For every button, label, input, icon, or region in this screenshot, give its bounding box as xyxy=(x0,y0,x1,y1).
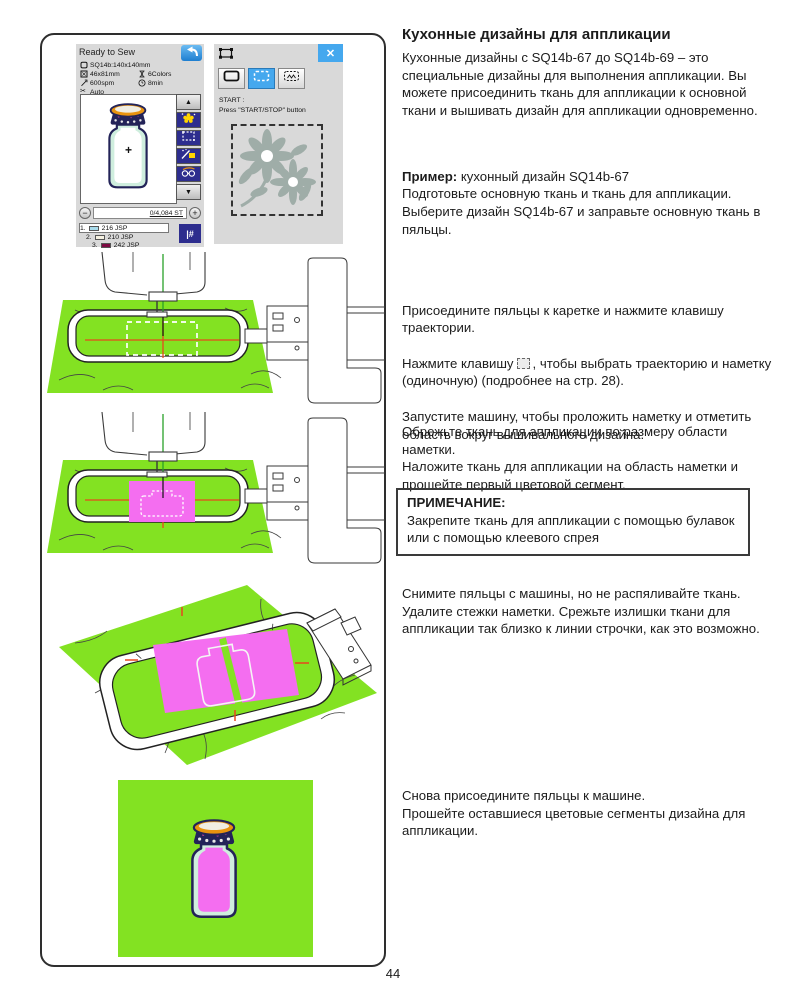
example-label: Пример: xyxy=(402,169,457,184)
trace-key-inline-icon xyxy=(517,358,530,369)
trace-stitch-button[interactable] xyxy=(278,68,305,89)
illustration-hoop-removed-trimmed xyxy=(45,583,385,773)
finished-jar-design xyxy=(178,800,250,940)
step-remove-paragraph: Снимите пяльцы с машины, но не распялива… xyxy=(402,585,772,638)
thread-swatch xyxy=(101,243,111,248)
thread-swatch xyxy=(89,226,99,231)
intro-paragraph: Кухонные дизайны с SQ14b-67 до SQ14b-69 … xyxy=(402,49,772,120)
step-attach-line2: Нажмите клавишу, чтобы выбрать траектори… xyxy=(402,355,772,390)
trace-frame-icon xyxy=(180,129,197,147)
thread-color-list: 1. 216 JSP 2. 210 JSP 3. 242 JSP xyxy=(79,223,176,250)
clock-icon xyxy=(138,79,146,87)
step-finish-paragraph: Снова присоедините пяльцы к машине. Прош… xyxy=(402,787,772,840)
design-preview-area: + xyxy=(80,94,177,204)
magic-wand-icon xyxy=(180,147,197,165)
scroll-down-button[interactable]: ▼ xyxy=(176,184,201,200)
lcd-button-column: ▲ xyxy=(176,94,201,202)
thread-number: 1. xyxy=(80,225,86,232)
example-body: Подготовьте основную ткань и ткань для а… xyxy=(402,185,772,238)
thread-row-1[interactable]: 1. 216 JSP xyxy=(79,223,169,233)
thread-number: 2. xyxy=(86,234,92,241)
hoop-icon xyxy=(80,61,88,69)
note-box: ПРИМЕЧАНИЕ: Закрепите ткань для аппликац… xyxy=(396,488,750,556)
thread-swatch xyxy=(95,235,105,240)
time-label: 8min xyxy=(148,80,163,87)
speed-label: 600spm xyxy=(90,80,114,87)
thread-number: 3. xyxy=(92,242,98,249)
return-button[interactable] xyxy=(181,45,202,61)
hoop-size-label: SQ14b:140x140mm xyxy=(90,62,150,69)
needle-position-cross: + xyxy=(125,143,132,157)
trace-area-dashed-box xyxy=(231,124,323,216)
stitch-minus-button[interactable]: − xyxy=(79,207,91,219)
example-design: кухонный дизайн SQ14b-67 xyxy=(457,169,629,184)
return-arrow-icon xyxy=(185,44,199,62)
trace-outline-button[interactable] xyxy=(218,68,245,89)
trace-mode-buttons xyxy=(218,68,305,89)
illustration-finished-applique xyxy=(118,780,313,957)
step-attach-line1: Присоедините пяльцы к каретке и нажмите … xyxy=(402,302,772,337)
example-paragraph: Пример: кухонный дизайн SQ14b-67 Подгото… xyxy=(402,150,772,256)
thread-number-button[interactable]: |# xyxy=(179,224,201,243)
thread-code: 242 JSP xyxy=(114,242,140,249)
step-cut-paragraph: Обрежьте ткань для аппликации по размеру… xyxy=(402,423,772,494)
flower-icon xyxy=(180,111,197,129)
design-flower-button[interactable] xyxy=(176,112,201,128)
up-arrow-icon: ▲ xyxy=(185,99,192,106)
basting-wand-button[interactable] xyxy=(176,148,201,164)
dashed-frame-icon xyxy=(252,69,271,88)
page-number: 44 xyxy=(0,966,786,981)
illustration-hoop-basting xyxy=(45,252,385,415)
thread-row-3[interactable]: 3. 242 JSP xyxy=(92,242,176,249)
trace-title-icon xyxy=(218,47,234,65)
close-button[interactable]: ✕ xyxy=(318,44,343,62)
manual-page: Ready to Sew SQ14b:140x140mm xyxy=(0,0,800,1000)
lcd-screen-trace: ✕ START : Press "START/STOP" button xyxy=(214,44,343,244)
speed-icon xyxy=(80,79,88,87)
flower-design-preview xyxy=(233,126,321,214)
trace-basting-button-selected[interactable] xyxy=(248,68,275,89)
lcd-title: Ready to Sew xyxy=(79,47,135,57)
thread-code: 216 JSP xyxy=(102,225,128,232)
start-instruction-text: START : Press "START/STOP" button xyxy=(219,96,306,115)
trace-frame-button[interactable] xyxy=(176,130,201,146)
stitch-counter-display: 0/4,084 ST xyxy=(93,207,187,219)
memory-glasses-button[interactable] xyxy=(176,166,201,182)
spool-icon xyxy=(138,70,146,78)
design-info-panel: SQ14b:140x140mm 46x81mm 6Colors xyxy=(80,61,202,97)
design-size-icon xyxy=(80,70,88,78)
note-title: ПРИМЕЧАНИЕ: xyxy=(407,494,739,512)
illustration-applique-fabric xyxy=(45,412,385,575)
stitch-counter-row: − 0/4,084 ST + xyxy=(79,206,201,220)
lcd-screen-ready-to-sew: Ready to Sew SQ14b:140x140mm xyxy=(76,44,204,247)
design-size-label: 46x81mm xyxy=(90,71,120,78)
note-body: Закрепите ткань для аппликации с помощью… xyxy=(407,512,739,547)
dashed-stitch-frame-icon xyxy=(282,69,301,88)
colors-count-label: 6Colors xyxy=(148,71,171,78)
page-title: Кухонные дизайны для аппликации xyxy=(402,26,671,43)
glasses-icon xyxy=(180,165,197,183)
stitch-plus-button[interactable]: + xyxy=(189,207,201,219)
scroll-up-button[interactable]: ▲ xyxy=(176,94,201,110)
solid-frame-icon xyxy=(222,69,241,88)
thread-code: 210 JSP xyxy=(108,234,134,241)
thread-row-2[interactable]: 2. 210 JSP xyxy=(86,234,176,241)
down-arrow-icon: ▼ xyxy=(185,189,192,196)
close-icon: ✕ xyxy=(326,47,335,60)
